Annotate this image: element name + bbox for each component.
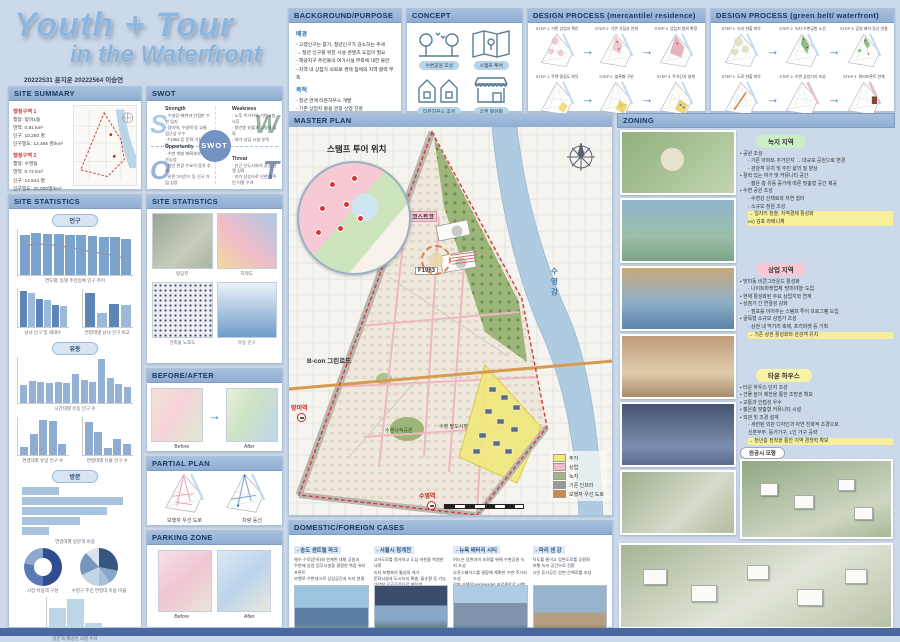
before-label: Before <box>174 444 189 450</box>
concept-header: CONCEPT <box>407 9 522 23</box>
after-label: After <box>244 444 255 450</box>
stats-pill-population: 인구 <box>52 214 98 227</box>
age-compare-chart <box>82 289 134 328</box>
arrow-right-icon: → <box>828 43 839 58</box>
building-age-map-image <box>152 282 213 338</box>
mr-step4-map <box>534 81 580 117</box>
caption-purpose: 연령대별 방문객 비중 <box>14 539 136 545</box>
zoning-green-box: 녹지 지역 • 공원 조성- 기존 아파트·주거단지 → 대규모 공원으로 변경… <box>740 131 893 226</box>
market-street-photo <box>620 334 736 399</box>
district1-lines: 행정: 망미1동면적: 0.81 km²인구: 10,260 명인구밀도: 12… <box>13 117 69 150</box>
gw-step4-map <box>718 81 764 117</box>
park-plaza-photo <box>620 130 736 195</box>
caption-floating-hour: 시간대별 유동 인구 수 <box>14 406 136 412</box>
case-seine: - 파리 센 강 차도를 줄이고 강변도로를 공원화보행·녹지 공간으로 전환시… <box>533 539 608 624</box>
swot-center-badge: SWOT <box>199 130 231 162</box>
completed-model-render <box>740 459 893 539</box>
swot-weakness: Weakness · 노후 주거지와 기반시설 낙후· 청년층 유출과 고령화 … <box>232 106 278 142</box>
zoning-photo-column <box>620 130 736 538</box>
caption-age-compare: 연령대별 남녀 인구 비교 <box>79 330 137 336</box>
master-plan-panel: MASTER PLAN <box>288 113 613 516</box>
floating-hour-chart <box>17 357 133 404</box>
caption-aerial: 항공뷰 <box>152 271 213 277</box>
townhouse-pill: 타운 하우스 <box>756 369 812 382</box>
commercial-zone-pill: 상업 지역 <box>756 263 806 276</box>
title-line2: in the Waterfront <box>70 42 282 68</box>
site-summary-map-svg <box>74 106 136 185</box>
gw-step3-map <box>841 33 887 69</box>
background-title: 배경 <box>296 30 394 41</box>
background-purpose-panel: BACKGROUND/PURPOSE 배경 - 고령인구는 증가, 청년인구가 … <box>288 8 402 112</box>
caption-gender: 남녀 인구 및 세대수 <box>14 330 72 336</box>
mr-step5-map <box>593 81 639 117</box>
vehicle-route-map <box>217 473 273 515</box>
partial-plan-panel: PARTIAL PLAN 보행자 우선 도로 차량 동선 <box>146 456 283 526</box>
tour-map-icon <box>469 29 513 59</box>
before-after-panel: BEFORE/AFTER → Before After <box>146 368 283 452</box>
caption-building-age: 건축물 노후도 <box>152 340 213 346</box>
case-songdo: - 송도 센트럴 파크 해수 수로(운하)와 연계된 대형 공원과주변에 상업·… <box>294 539 369 624</box>
mr-step6-map <box>653 81 699 117</box>
design-process-mr-panel: DESIGN PROCESS (mercantile/ residence) S… <box>527 8 706 112</box>
before-after-header: BEFORE/AFTER <box>147 369 282 383</box>
zoning-header: ZONING <box>617 113 895 128</box>
arrow-right-icon: → <box>641 43 652 58</box>
stamp-tour-inset-map <box>297 161 411 275</box>
background-purpose-header: BACKGROUND/PURPOSE <box>289 9 401 23</box>
district1-title: 행정구역 1 <box>13 108 69 117</box>
gw-step2-map <box>779 33 825 69</box>
townhouse-render-photo <box>620 470 736 535</box>
zoning-panel: ZONING 녹지 지역 • 공원 조성- 기존 아파트·주거단지 → 대규모 … <box>617 113 895 628</box>
mr-step3-map <box>653 33 699 69</box>
inflow-chart <box>17 417 69 456</box>
gender-chart <box>17 289 69 328</box>
parking-before-label: Before <box>174 614 189 620</box>
bottom-border-bar <box>0 628 900 636</box>
floating-population-map-image <box>217 282 278 338</box>
mangmi-station-label: 망미역 <box>291 403 308 412</box>
background-lines: - 고령인구는 증가, 청년인구가 감소하는 추세→ 청년 인구를 위한 시설·… <box>296 42 394 84</box>
cases-header: DOMESTIC/FOREIGN CASES <box>289 521 612 535</box>
zoning-pink-box: 상업 지역 • 망미동 비콘그라운드 활성화- 나이트마켓업체 '망미야행' 도… <box>740 259 893 339</box>
master-plan-legend: 주거상업녹지기존 인프라보행자 우선 도로 <box>550 451 607 501</box>
waterfront-park-photo <box>620 198 736 263</box>
caption-donut: 시장 이용객 구성 <box>24 588 62 594</box>
zoning-yellow-box: 타운 하우스 • 타운 하우스 단지 조성• 건물 높이 제한을 통한 조망권 … <box>740 365 893 445</box>
case-cheonggyecheon: - 서울시 청계천 고가도로를 철거하고 도심 하천을 복원한 사례녹지 보행축… <box>374 539 449 624</box>
townhouse-icon <box>417 75 461 105</box>
cases-panel: DOMESTIC/FOREIGN CASES - 송도 센트럴 파크 해수 수로… <box>288 520 613 628</box>
stamp-tour-label: 스탬프 투어 위치 <box>327 143 386 155</box>
stamp-icon <box>421 245 451 275</box>
suyeong-station-label: 수영역 <box>419 491 436 500</box>
historic-park-label: 수영사적공원 <box>385 427 413 434</box>
arrow-right-icon: → <box>766 43 777 58</box>
purpose-title: 목적 <box>296 86 394 97</box>
arrow-right-icon: → <box>766 91 777 106</box>
concept-item-park: 수변공원 조성 <box>417 29 461 70</box>
after-map-image <box>226 388 278 442</box>
concept-item-house: 타운하우스 조성 <box>417 75 461 116</box>
site-summary-panel: SITE SUMMARY 행정구역 1 행정: 망미1동면적: 0.81 km²… <box>8 86 142 190</box>
pedestrian-road-map <box>156 473 212 515</box>
design-process-mr-header: DESIGN PROCESS (mercantile/ residence) <box>528 9 705 23</box>
before-map-image <box>151 388 203 442</box>
masterplan-aerial-render <box>619 543 893 629</box>
caption-pie: 수영구 주민 연령대 이용 비율 <box>72 588 127 594</box>
parking-zone-header: PARKING ZONE <box>147 531 282 545</box>
caption-revisit: 방문객 재방문 의향 수치 <box>14 636 136 642</box>
costco-label: 코스트코 <box>409 211 437 222</box>
canal-town-photo <box>620 266 736 331</box>
market-users-donut <box>24 548 62 586</box>
park-trees-icon <box>417 29 461 59</box>
design-process-gw-header: DESIGN PROCESS (green belt/ waterfront) <box>711 9 894 23</box>
suyeong-station-icon <box>427 501 436 510</box>
swot-threat: Threat · 인근 신도시와의 상권 경쟁 심화· 지가 상승으로 인한 원… <box>232 156 278 187</box>
age-usage-pie <box>80 548 118 586</box>
arrow-right-icon: → <box>581 91 592 106</box>
parking-after-label: After <box>244 614 255 620</box>
site-summary-info: 행정구역 1 행정: 망미1동면적: 0.81 km²인구: 10,260 명인… <box>13 105 69 186</box>
design-process-gw-panel: DESIGN PROCESS (green belt/ waterfront) … <box>710 8 895 112</box>
case-battery-city: - 뉴욕 배터리 시티 허드슨 강변과의 조화를 위해 수변공원·녹지 조성오픈… <box>453 539 528 624</box>
bcon-greenroad-label: B-con 그린로드 <box>307 355 351 365</box>
population-trend-chart <box>17 229 133 276</box>
master-plan-map: 스탬프 투어 위치 코스트코 F1963 B-con 그린로드 망미역 수영역 … <box>289 127 612 515</box>
gw-step6-map <box>841 81 887 117</box>
authors-line: 20222531 윤지운 20222564 이승연 <box>24 74 282 84</box>
site-summary-header: SITE SUMMARY <box>9 87 141 101</box>
aerial-view-image <box>152 213 213 269</box>
paldo-market-label: 수영 팔도시장 <box>439 423 468 430</box>
arrow-right-icon: → <box>581 43 592 58</box>
caption-inflow: 연령대별 유입 인구 수 <box>14 458 72 464</box>
mr-step1-map <box>534 33 580 69</box>
caption-outflow: 연령대별 유출 인구 수 <box>79 458 137 464</box>
night-street-photo <box>620 402 736 467</box>
poster-title: Youth + Tour in the Waterfront 20222531 … <box>14 8 282 82</box>
partial-plan-caption2: 차량 동선 <box>242 517 262 524</box>
swot-header: SWOT <box>147 87 282 101</box>
master-plan-header: MASTER PLAN <box>289 114 612 128</box>
river-name-label: 수영강 <box>549 267 560 299</box>
stats-pill-visit: 방문 <box>52 470 98 483</box>
site-summary-map <box>73 105 137 186</box>
concept-item-map: 스탬프 투어 <box>469 29 513 70</box>
gw-step5-map <box>779 81 825 117</box>
parking-before-image <box>158 550 212 612</box>
swot-panel: SWOT S W O T Strength · 수영강·해변과 인접한 수변 입… <box>146 86 283 190</box>
visit-purpose-chart <box>14 485 136 537</box>
parking-after-image <box>217 550 271 612</box>
cadastral-map-image <box>217 213 278 269</box>
concept-panel: CONCEPT 수변공원 조성 스탬프 투어 <box>406 8 523 112</box>
scale-bar <box>444 504 524 509</box>
concept-item-store: 상권 활성화 <box>469 75 513 116</box>
green-zone-pill: 녹지 지역 <box>756 135 806 148</box>
district2-lines: 행정: 수영동면적: 0.72 km²인구: 14,544 명인구밀도: 20,… <box>13 161 69 194</box>
stats-pill-floating: 유동 <box>52 342 98 355</box>
site-statistics-maps-panel: SITE STATISTICS 항공뷰 지적도 건축물 노후도 유동 인구 <box>146 194 283 364</box>
arrow-right-icon: → <box>641 91 652 106</box>
mangmi-station-icon <box>297 413 306 422</box>
poster: { "meta": { "title_line1": "Youth + Tour… <box>0 0 900 636</box>
site-statistics-left-panel: SITE STATISTICS 인구 연도별, 동별 주민등록 인구 추이 남녀… <box>8 194 142 628</box>
parking-zone-panel: PARKING ZONE Before After <box>146 530 283 628</box>
district2-title: 행정구역 2 <box>13 152 69 161</box>
arrow-right-icon: → <box>828 91 839 106</box>
storefront-icon <box>469 75 513 105</box>
site-statistics-left-header: SITE STATISTICS <box>9 195 141 209</box>
outflow-chart <box>82 417 134 456</box>
gw-step1-map <box>718 33 764 69</box>
title-line1: Youth + Tour <box>14 8 282 42</box>
arrow-right-icon: → <box>208 408 221 423</box>
caption-pop-trend: 연도별, 동별 주민등록 인구 추이 <box>14 278 136 284</box>
completed-model-label: 완공시 모형 <box>740 447 785 459</box>
partial-plan-header: PARTIAL PLAN <box>147 457 282 471</box>
partial-plan-caption1: 보행자 우선 도로 <box>167 517 202 524</box>
site-statistics-maps-header: SITE STATISTICS <box>147 195 282 209</box>
mr-step2-map <box>593 33 639 69</box>
caption-floating-map: 유동 인구 <box>217 340 278 346</box>
caption-cadastral: 지적도 <box>217 271 278 277</box>
